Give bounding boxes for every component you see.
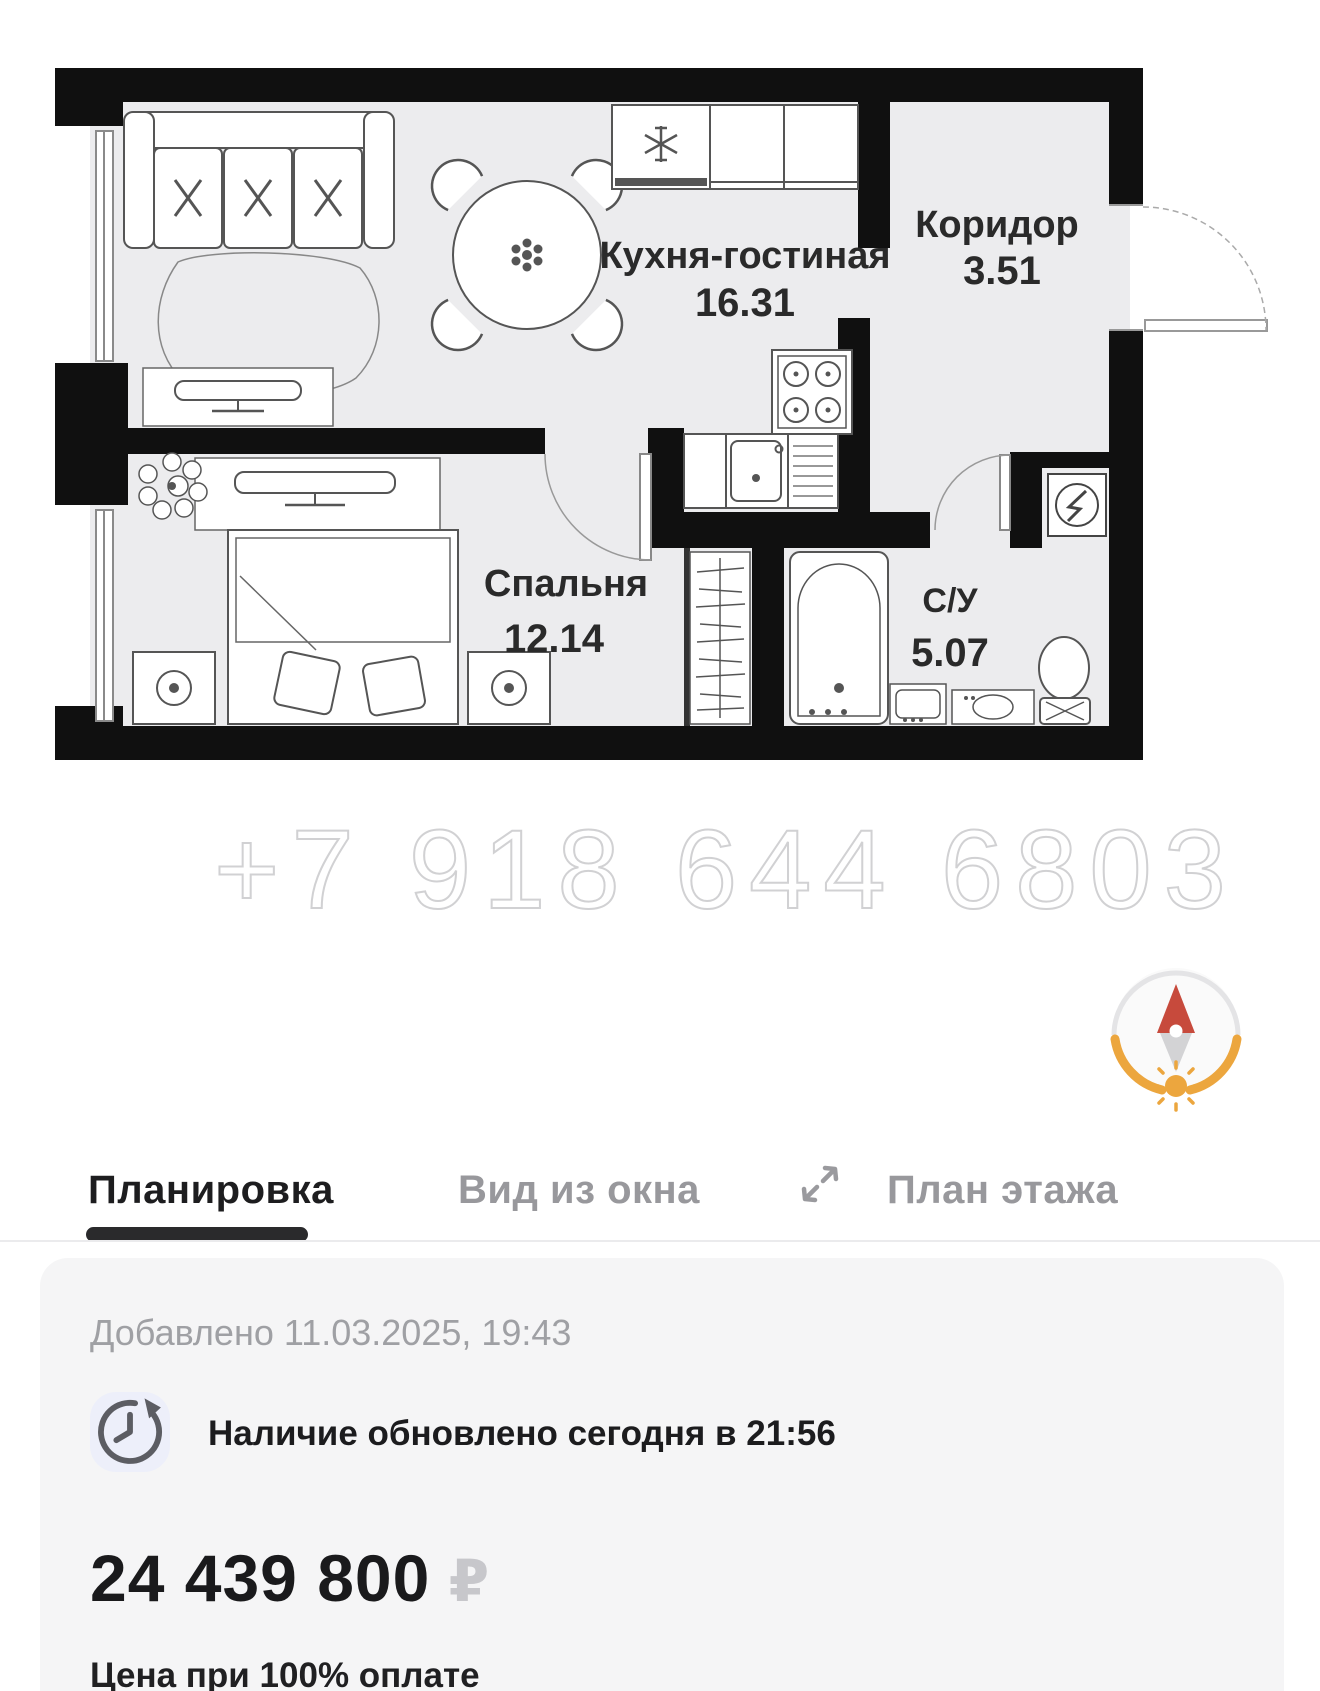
compass-icon (1114, 968, 1238, 1110)
price-note: Цена при 100% оплате (90, 1656, 480, 1691)
bathtub-icon (790, 552, 888, 724)
availability-status: Наличие обновлено сегодня в 21:56 (208, 1414, 836, 1454)
watermark-phone: +7 918 644 6803 (214, 807, 1238, 932)
expand-icon[interactable] (798, 1158, 842, 1212)
room-label-kitchen-living: Кухня-гостиная (599, 235, 890, 277)
sun-icon (1152, 1062, 1200, 1110)
tab-layout[interactable]: Планировка (88, 1168, 334, 1213)
sofa-icon (124, 112, 394, 248)
kitchen-sink-icon (684, 434, 838, 508)
toilet-icon (1039, 637, 1090, 724)
floor-plan-svg: Кухня-гостиная 16.31 Коридор 3.51 Спальн… (0, 0, 1320, 1150)
tabs-divider (0, 1240, 1320, 1242)
tv-bedroom-icon (195, 458, 440, 530)
offer-card: Добавлено 11.03.2025, 19:43 Наличие обно… (40, 1258, 1284, 1691)
entrance-door (1109, 205, 1267, 331)
tab-window-view[interactable]: Вид из окна (458, 1168, 700, 1213)
electrical-panel-icon (1048, 474, 1106, 536)
kitchen-cabinets (710, 105, 858, 189)
room-label-bathroom: С/У (922, 582, 978, 620)
price-row: 24 439 800 ₽ (90, 1540, 489, 1616)
added-date: Добавлено 11.03.2025, 19:43 (90, 1312, 571, 1354)
room-label-corridor: Коридор (915, 204, 1079, 246)
clock-refresh-icon (90, 1392, 170, 1472)
bed-icon (228, 530, 458, 724)
room-area-corridor: 3.51 (963, 249, 1041, 293)
room-label-bedroom: Спальня (484, 563, 648, 605)
sink-vanity-icon (952, 690, 1034, 724)
room-area-bathroom: 5.07 (911, 631, 989, 675)
floor-plan-image: Кухня-гостиная 16.31 Коридор 3.51 Спальн… (0, 0, 1320, 1150)
room-area-kitchen-living: 16.31 (695, 281, 795, 325)
tv-living-icon (143, 368, 333, 426)
room-area-bedroom: 12.14 (504, 617, 605, 661)
currency-symbol: ₽ (449, 1547, 489, 1615)
wardrobe-icon (690, 552, 750, 724)
stove-icon (772, 350, 852, 434)
apartment-listing-page: Кухня-гостиная 16.31 Коридор 3.51 Спальн… (0, 0, 1320, 1691)
price-value: 24 439 800 (90, 1541, 430, 1615)
tab-floor-plan[interactable]: План этажа (887, 1168, 1118, 1213)
washing-machine-icon (890, 684, 946, 724)
fridge-icon (612, 105, 710, 189)
